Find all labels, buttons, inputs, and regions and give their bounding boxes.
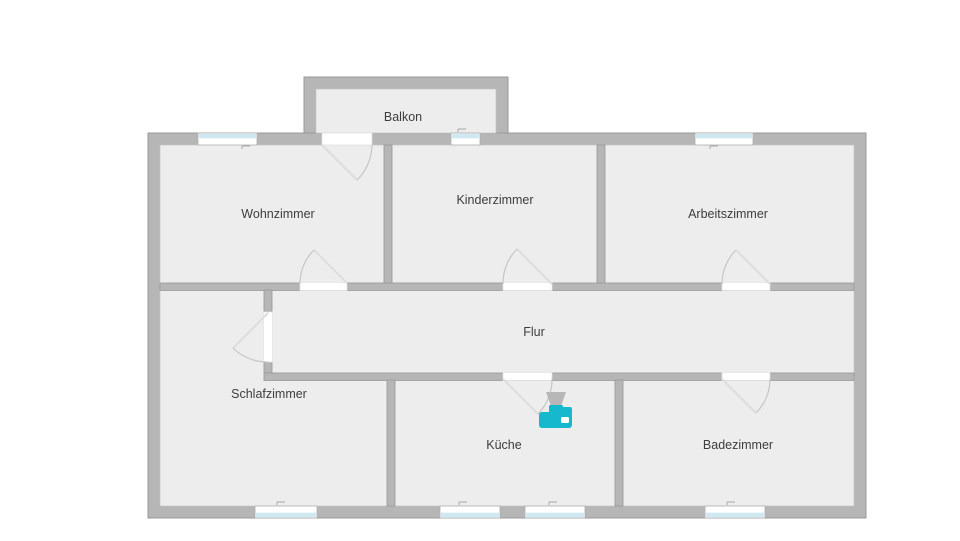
room-label-kueche: Küche [486,438,521,452]
room-label-schlafzimmer: Schlafzimmer [231,387,307,401]
room-floor-kinderzimmer [392,145,597,283]
room-label-flur: Flur [523,325,545,339]
partition-wall-wohnzimmer-kinderzimmer [384,145,392,283]
room-label-badezimmer: Badezimmer [703,438,773,452]
partition-wall-kueche-badezimmer [615,380,623,506]
floor-plan-canvas: Balkon Wohnzimmer Kinderzimmer Arbeitszi… [0,0,960,541]
room-label-balkon: Balkon [384,110,422,124]
partition-wall-kinderzimmer-arbeitszimmer [597,145,605,283]
room-label-arbeitszimmer: Arbeitszimmer [688,207,768,221]
partition-wall-schlafzimmer-kueche [387,380,395,506]
room-label-kinderzimmer: Kinderzimmer [456,193,533,207]
floor-plan-drawing: Balkon Wohnzimmer Kinderzimmer Arbeitszi… [0,0,960,541]
room-floor-flur [272,290,854,373]
room-label-wohnzimmer: Wohnzimmer [241,207,314,221]
